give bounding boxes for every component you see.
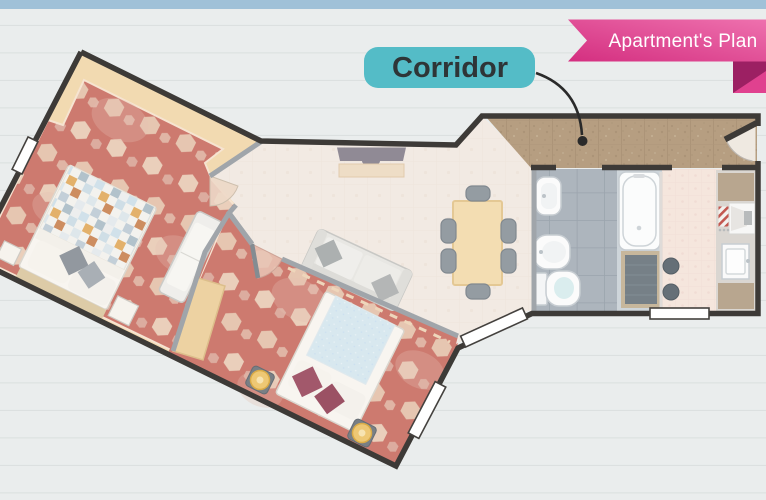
svg-text:Apartment's Plan: Apartment's Plan	[609, 31, 758, 52]
svg-text:Corridor: Corridor	[392, 52, 508, 84]
